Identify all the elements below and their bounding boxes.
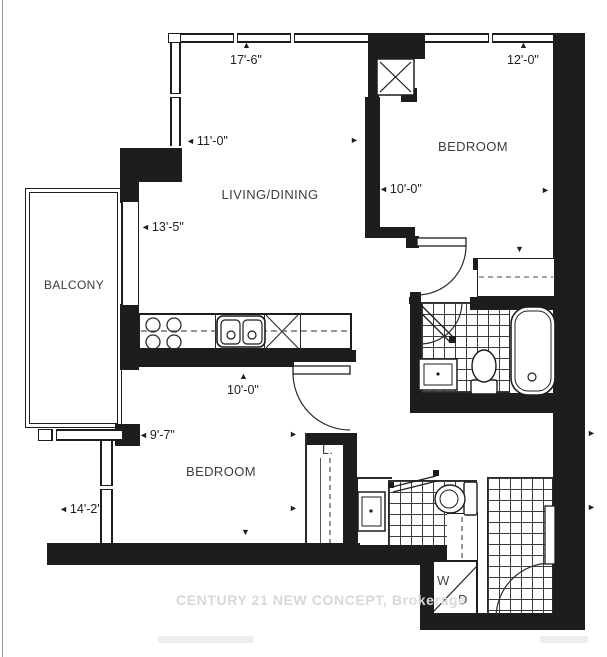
dim-bedroom2-window: ◄ 9'-7" — [139, 428, 175, 442]
door-leaf-bathroom2 — [388, 470, 439, 492]
dim-arrow-right-icon: ► — [289, 430, 298, 439]
dim-arrow-down-icon: ▼ — [241, 528, 250, 537]
dim-arrow-up-icon: ▲ — [519, 41, 528, 50]
dim-arrow-up-icon: ▲ — [239, 372, 248, 381]
dim-arrow-down-icon: ▼ — [515, 245, 524, 254]
bathroom2-toilet — [435, 482, 477, 515]
dim-text: 12'-0" — [507, 53, 539, 67]
room-label-linen-closet: L. — [322, 443, 333, 457]
dim-arrow-left-icon: ◄ — [186, 137, 195, 146]
door-leaf-laundry — [545, 506, 555, 564]
dim-text: 9'-7" — [150, 428, 175, 442]
dim-text: 10'-0" — [227, 383, 259, 397]
door-arc-bedroom1 — [417, 246, 466, 295]
room-label-balcony: BALCONY — [44, 278, 96, 292]
dim-arrow-left-icon: ◄ — [141, 223, 150, 232]
dim-arrow-left-icon: ◄ — [59, 505, 68, 514]
dim-top-window-bedroom: 12'-0" — [507, 53, 539, 67]
dim-arrow-right-icon: ► — [587, 429, 596, 438]
bathroom1-toilet — [471, 350, 497, 394]
dim-kitchen-width: 10'-0" — [227, 383, 259, 397]
dim-text: 10'-0" — [390, 182, 422, 196]
room-label-living: LIVING/DINING — [220, 187, 320, 202]
dim-bedroom2-width: ◄ 14'-2" — [59, 502, 102, 516]
door-arc-laundry — [496, 563, 551, 618]
door-leaf-bedroom1 — [417, 238, 466, 246]
dim-text: 11'-0" — [197, 134, 228, 148]
watermark: CENTURY 21 NEW CONCEPT, Brokerage — [176, 592, 467, 608]
dim-arrow-right-icon: ► — [541, 186, 550, 195]
kitchen-sink — [217, 316, 265, 347]
dim-arrow-right-icon: ► — [289, 504, 298, 513]
dim-top-window-living: 17'-6" — [230, 53, 262, 67]
dim-arrow-left-icon: ◄ — [379, 185, 388, 194]
fixtures-overlay — [0, 0, 607, 657]
dim-living-width: ◄ 11'-0" — [186, 134, 228, 148]
stove-burners — [146, 318, 181, 349]
room-label-bedroom1: BEDROOM — [438, 139, 502, 154]
door-arc-bedroom2 — [293, 373, 350, 430]
room-label-bedroom2: BEDROOM — [186, 464, 250, 479]
bathroom2-vanity-sink — [358, 492, 385, 531]
label-washer: W — [437, 573, 450, 588]
dim-bedroom1-width: ◄ 10'-0" — [379, 182, 422, 196]
shower-door — [409, 297, 456, 343]
dim-arrow-up-icon: ▲ — [242, 41, 251, 50]
dim-arrow-right-icon: ► — [587, 503, 596, 512]
floor-plan: LIVING/DINING BEDROOM BEDROOM BALCONY L.… — [0, 0, 607, 657]
door-leaf-bedroom2 — [293, 366, 350, 374]
dim-text: 17'-6" — [230, 53, 262, 67]
bathtub — [511, 307, 555, 395]
dim-arrow-right-icon: ► — [350, 136, 359, 145]
dim-text: 13'-5" — [152, 220, 184, 234]
shaft-box — [377, 59, 414, 95]
dim-arrow-left-icon: ◄ — [139, 431, 148, 440]
dim-living-height: ◄ 13'-5" — [141, 220, 184, 234]
dim-text: 14'-2" — [70, 502, 102, 516]
bathroom1-vanity-sink — [419, 359, 457, 390]
